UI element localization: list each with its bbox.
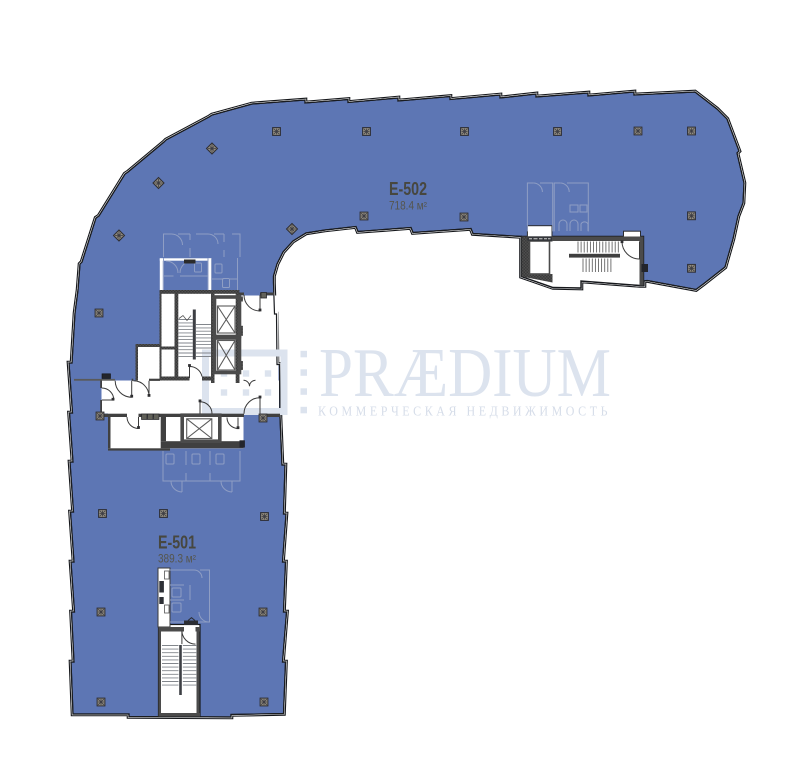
svg-text:718.4 м²: 718.4 м² <box>389 201 427 213</box>
svg-text:E-501: E-501 <box>158 533 196 553</box>
svg-text:PRÆDIUM: PRÆDIUM <box>319 335 611 412</box>
svg-text:E-502: E-502 <box>389 179 427 199</box>
svg-text:389.3 м²: 389.3 м² <box>158 554 196 566</box>
svg-text:КОММЕРЧЕСКАЯ НЕДВИЖИМОСТЬ: КОММЕРЧЕСКАЯ НЕДВИЖИМОСТЬ <box>318 404 611 419</box>
